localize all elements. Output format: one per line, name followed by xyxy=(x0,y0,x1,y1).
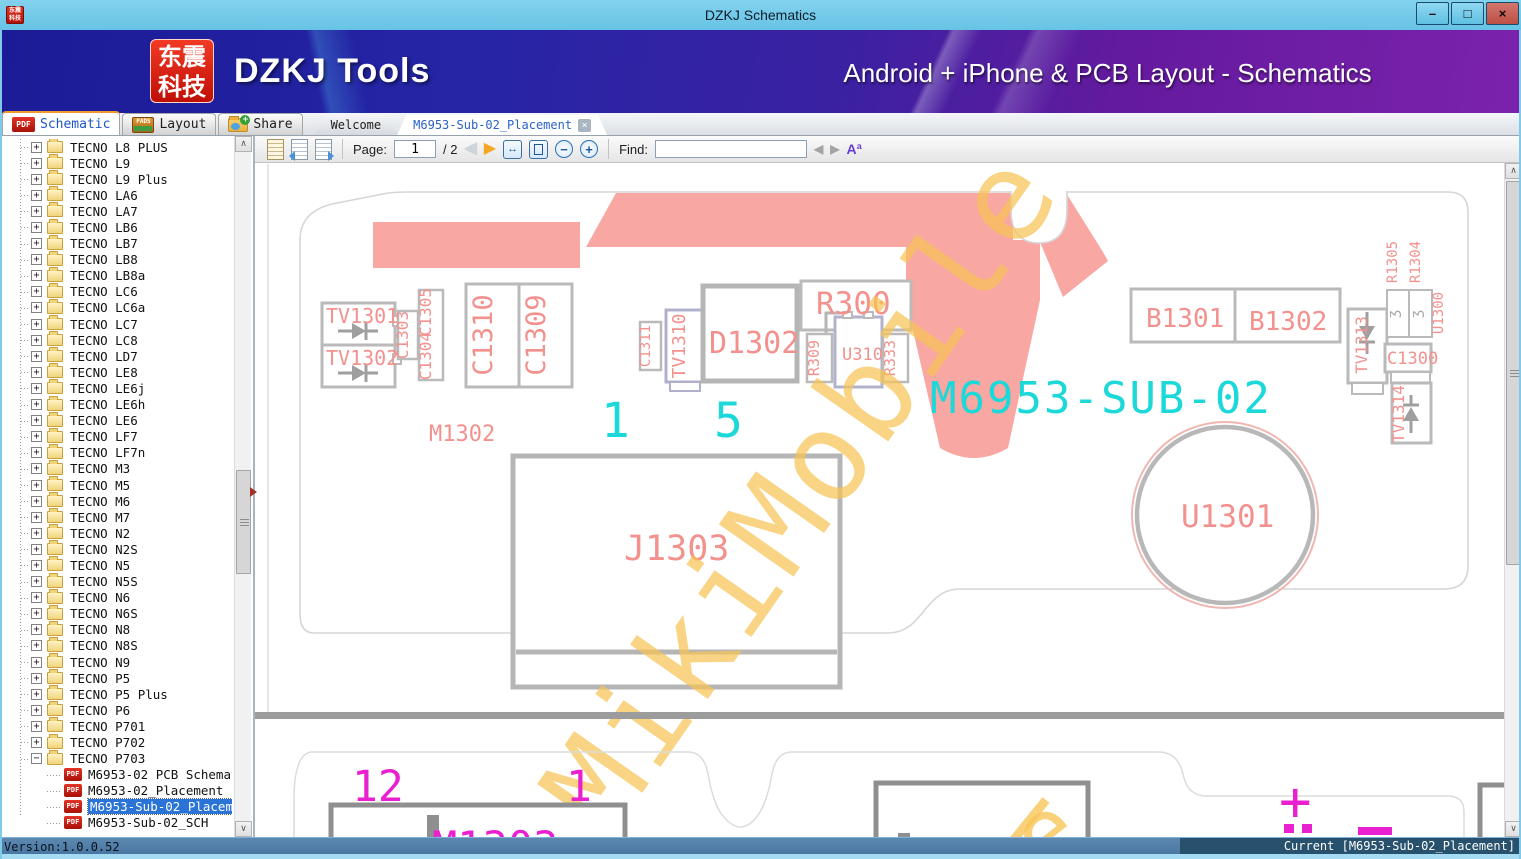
tree-folder-TECNO-LE8[interactable]: +TECNO LE8 xyxy=(0,364,232,380)
folder-icon xyxy=(47,640,63,652)
tree-folder-TECNO-LF7n[interactable]: +TECNO LF7n xyxy=(0,445,232,461)
current-document-label: Current [M6953-Sub-02_Placement] xyxy=(1180,838,1521,855)
tree-item-label: M6953-02_Placement xyxy=(88,783,223,798)
tree-item-label: TECNO L8 PLUS xyxy=(70,140,168,155)
dzkj-logo: 东震 科技 xyxy=(150,39,214,103)
folder-icon xyxy=(47,238,63,250)
expander-icon[interactable]: + xyxy=(31,480,42,491)
close-button[interactable]: × xyxy=(1486,2,1519,25)
toolbar-separator xyxy=(608,139,609,159)
pdf-icon: PDF xyxy=(64,800,82,813)
page-separator xyxy=(255,712,1521,719)
tree-item-label: TECNO LC7 xyxy=(70,317,138,332)
folder-icon xyxy=(47,286,63,298)
pcb-placement-canvas: ʒʒTV1301TV1302C1303C1304C1305C1310C1309M… xyxy=(255,163,1521,837)
tree-item-label: TECNO N5 xyxy=(70,558,130,573)
expander-icon[interactable]: + xyxy=(31,705,42,716)
label2-pin12: 12 xyxy=(352,762,404,812)
tree-item-label: TECNO LF7 xyxy=(70,429,138,444)
tab-share[interactable]: + Share xyxy=(218,113,302,135)
expander-icon[interactable]: + xyxy=(31,624,42,635)
folder-icon xyxy=(47,270,63,282)
label-TV1302: TV1302 xyxy=(326,346,398,370)
expander-icon[interactable]: + xyxy=(31,431,42,442)
scrollbar-thumb[interactable] xyxy=(236,470,251,574)
tree-item-label: TECNO L9 xyxy=(70,156,130,171)
pdf-icon: PDF xyxy=(64,768,82,781)
expander-icon[interactable]: + xyxy=(31,415,42,426)
tree-item-label: TECNO M7 xyxy=(70,510,130,525)
tree-folder-TECNO-N2[interactable]: +TECNO N2 xyxy=(0,525,232,541)
label-R1305: R1305 xyxy=(1385,241,1401,283)
page-total-label: / 2 xyxy=(443,142,457,157)
match-case-button[interactable]: Aª xyxy=(846,141,861,157)
expander-icon[interactable]: + xyxy=(31,142,42,153)
tree-item-label: TECNO P5 Plus xyxy=(70,687,168,702)
expander-icon[interactable]: + xyxy=(31,673,42,684)
previous-page-button[interactable]: ◀ xyxy=(464,141,476,157)
folder-icon xyxy=(47,737,63,749)
expander-icon[interactable]: + xyxy=(31,592,42,603)
folder-icon xyxy=(47,479,63,491)
folder-icon xyxy=(47,399,63,411)
expander-icon[interactable]: + xyxy=(31,528,42,539)
find-input[interactable] xyxy=(655,140,807,158)
tree-item-label: TECNO N2 xyxy=(70,526,130,541)
scrollbar-grip-icon xyxy=(240,522,249,523)
tree-item-label: TECNO LB8a xyxy=(70,268,145,283)
tree-item-label: TECNO N8 xyxy=(70,622,130,637)
tree-folder-TECNO-P701[interactable]: +TECNO P701 xyxy=(0,718,232,734)
next-page-button[interactable]: ▶ xyxy=(484,141,496,157)
tab-label: Schematic xyxy=(40,117,110,132)
folder-icon xyxy=(47,189,63,201)
zoom-in-button[interactable]: + xyxy=(580,140,598,158)
tree-item-label: TECNO N5S xyxy=(70,574,138,589)
folder-icon xyxy=(47,704,63,716)
tab-strip: PDF Schematic PADS Layout + Share Welcom… xyxy=(0,113,1521,136)
folder-icon xyxy=(47,592,63,604)
folder-icon xyxy=(47,222,63,234)
tree-folder-TECNO-P702[interactable]: +TECNO P702 xyxy=(0,734,232,750)
label2-plus: + xyxy=(1279,770,1312,833)
page-number-input[interactable] xyxy=(394,140,436,158)
expander-icon[interactable]: + xyxy=(31,254,42,265)
doc-tab-welcome[interactable]: Welcome xyxy=(315,115,398,135)
app-window: 东震 科技 DZKJ Schematics – □ × 东震 科技 DZKJ T… xyxy=(0,0,1521,859)
maximize-button[interactable]: □ xyxy=(1451,2,1484,25)
label-pin5: 5 xyxy=(714,393,743,449)
tree-folder-TECNO-N9[interactable]: +TECNO N9 xyxy=(0,654,232,670)
folder-icon xyxy=(47,624,63,636)
tree-item-label: TECNO LA6 xyxy=(70,188,138,203)
expander-icon[interactable]: + xyxy=(31,174,42,185)
tree-item-label: TECNO N6 xyxy=(70,590,130,605)
pdf-viewer[interactable]: ʒʒTV1301TV1302C1303C1304C1305C1310C1309M… xyxy=(255,163,1521,837)
splitter-handle[interactable] xyxy=(250,487,257,497)
expander-icon[interactable]: + xyxy=(31,657,42,668)
label-R1304: R1304 xyxy=(1408,241,1424,283)
expander-icon[interactable]: + xyxy=(31,560,42,571)
expander-icon[interactable]: + xyxy=(31,640,42,651)
label-TV1310: TV1310 xyxy=(669,313,690,378)
plus-badge-icon: + xyxy=(240,115,250,125)
label-C1309: C1309 xyxy=(521,294,552,375)
tab-schematic[interactable]: PDF Schematic xyxy=(2,111,120,135)
tree-item-label: TECNO N2S xyxy=(70,542,138,557)
expander-icon[interactable]: + xyxy=(31,302,42,313)
tree-item-label: M6953-Sub-02_SCH xyxy=(88,815,208,830)
expander-icon[interactable]: + xyxy=(31,158,42,169)
cloud-icon xyxy=(231,123,240,130)
tree-item-label: TECNO LA7 xyxy=(70,204,138,219)
tree-item-label: TECNO M3 xyxy=(70,461,130,476)
tree-item-label: TECNO LE6j xyxy=(70,381,145,396)
sidebar-scrollbar[interactable]: ∧ ∨ xyxy=(234,136,251,837)
tree-folder-TECNO-LB6[interactable]: +TECNO LB6 xyxy=(0,219,232,235)
scroll-down-button[interactable]: ∨ xyxy=(235,821,252,837)
folder-icon xyxy=(47,141,63,153)
find-label: Find: xyxy=(619,142,648,157)
expander-icon[interactable]: + xyxy=(31,367,42,378)
tree-folder-TECNO-LC6a[interactable]: +TECNO LC6a xyxy=(0,300,232,316)
tree-item-label: TECNO LB6 xyxy=(70,220,138,235)
expander-icon[interactable]: + xyxy=(31,737,42,748)
tab-layout[interactable]: PADS Layout xyxy=(122,113,216,135)
folder-icon xyxy=(47,415,63,427)
folder-icon xyxy=(47,334,63,346)
folder-icon xyxy=(47,753,63,765)
expander-icon[interactable]: + xyxy=(31,447,42,458)
tree-folder-TECNO-LB7[interactable]: +TECNO LB7 xyxy=(0,236,232,252)
folder-icon xyxy=(47,688,63,700)
pdf-icon: PDF xyxy=(64,784,82,797)
folder-icon xyxy=(47,447,63,459)
expander-icon[interactable]: + xyxy=(31,351,42,362)
tree-folder-TECNO-P5[interactable]: +TECNO P5 xyxy=(0,670,232,686)
tree-item-M6953-Sub-02_SCH[interactable]: PDFM6953-Sub-02_SCH xyxy=(0,815,232,831)
expander-icon[interactable]: + xyxy=(31,286,42,297)
label-C1310: C1310 xyxy=(468,294,499,375)
page-thumbnail-icon[interactable] xyxy=(267,139,284,160)
tree-folder-TECNO-LC7[interactable]: +TECNO LC7 xyxy=(0,316,232,332)
tree-item-label: TECNO LC6a xyxy=(70,300,145,315)
brand-title: DZKJ Tools xyxy=(234,52,430,91)
tree-folder-TECNO-P6[interactable]: +TECNO P6 xyxy=(0,702,232,718)
tree-folder-TECNO-N5S[interactable]: +TECNO N5S xyxy=(0,574,232,590)
brand-tagline: Android + iPhone & PCB Layout - Schemati… xyxy=(795,58,1420,89)
tree-folder-TECNO-N2S[interactable]: +TECNO N2S xyxy=(0,541,232,557)
tree-folder-TECNO-M7[interactable]: +TECNO M7 xyxy=(0,509,232,525)
expander-icon[interactable]: + xyxy=(31,689,42,700)
tree-item-M6953-02_Placement[interactable]: PDFM6953-02_Placement xyxy=(0,783,232,799)
title-bar: 东震 科技 DZKJ Schematics – □ × xyxy=(0,0,1521,30)
expander-icon[interactable]: + xyxy=(31,512,42,523)
tree-folder-TECNO-LE6j[interactable]: +TECNO LE6j xyxy=(0,380,232,396)
tree-folder-TECNO-M5[interactable]: +TECNO M5 xyxy=(0,477,232,493)
folder-icon xyxy=(47,495,63,507)
fit-width-button[interactable]: ↔ xyxy=(503,140,522,159)
tree-item-label: TECNO M6 xyxy=(70,494,130,509)
status-bar: Version:1.0.0.52 Current [M6953-Sub-02_P… xyxy=(0,837,1521,859)
fit-page-button[interactable] xyxy=(529,140,548,159)
tree-item-label: TECNO P702 xyxy=(70,735,145,750)
folder-icon xyxy=(47,173,63,185)
label-board-name: M6953-SUB-02 xyxy=(930,373,1272,424)
tree-folder-TECNO-LE6h[interactable]: +TECNO LE6h xyxy=(0,397,232,413)
label-U1301: U1301 xyxy=(1181,499,1274,535)
tree-folder-TECNO-LC8[interactable]: +TECNO LC8 xyxy=(0,332,232,348)
folder-icon xyxy=(47,576,63,588)
expander-icon[interactable]: − xyxy=(31,753,42,764)
pads-icon: PADS xyxy=(132,117,154,133)
folder-icon xyxy=(47,608,63,620)
folder-icon xyxy=(47,511,63,523)
folder-icon xyxy=(47,382,63,394)
flex-cable-bar xyxy=(373,222,580,268)
folder-icon xyxy=(47,543,63,555)
resistor-glyph-R1305: ʒ xyxy=(1386,310,1402,318)
resistor-glyph-R1304: ʒ xyxy=(1409,310,1425,318)
folder-icon xyxy=(47,205,63,217)
tree-item-label: TECNO LE6h xyxy=(70,397,145,412)
expander-icon[interactable]: + xyxy=(31,270,42,281)
tree-folder-TECNO-N6[interactable]: +TECNO N6 xyxy=(0,590,232,606)
tree-folder-TECNO-N8[interactable]: +TECNO N8 xyxy=(0,622,232,638)
tree-folder-TECNO-LC6[interactable]: +TECNO LC6 xyxy=(0,284,232,300)
label-C1305: C1305 xyxy=(416,288,435,336)
component-TV1310-pad xyxy=(670,382,700,391)
tree-folder-TECNO-P5-Plus[interactable]: +TECNO P5 Plus xyxy=(0,686,232,702)
tree-folder-TECNO-LB8a[interactable]: +TECNO LB8a xyxy=(0,268,232,284)
previous-view-icon[interactable] xyxy=(291,139,308,160)
tree-item-label: TECNO LC6 xyxy=(70,284,138,299)
window-frame-bottom xyxy=(0,854,1521,859)
expander-icon[interactable]: + xyxy=(31,721,42,732)
folder-icon xyxy=(47,366,63,378)
tree-folder-TECNO-N5[interactable]: +TECNO N5 xyxy=(0,557,232,573)
folder-icon xyxy=(47,431,63,443)
folder-icon xyxy=(47,720,63,732)
minimize-button[interactable]: – xyxy=(1416,2,1449,25)
tree-folder-TECNO-LF7[interactable]: +TECNO LF7 xyxy=(0,429,232,445)
folder-icon xyxy=(47,318,63,330)
folder-icon xyxy=(47,559,63,571)
tree-folder-TECNO-L9-Plus[interactable]: +TECNO L9 Plus xyxy=(0,171,232,187)
tree-item-label: TECNO LB7 xyxy=(70,236,138,251)
doc-tab-label: M6953-Sub-02_Placement xyxy=(413,118,572,132)
expander-icon[interactable]: + xyxy=(31,399,42,410)
pdf-icon: PDF xyxy=(64,816,82,829)
toolbar-separator xyxy=(342,139,343,159)
scrollbar-grip-icon xyxy=(1510,373,1519,374)
window-title: DZKJ Schematics xyxy=(0,7,1521,23)
label-TV1313: TV1313 xyxy=(1352,316,1371,374)
pdf-toolbar: Page: / 2 ◀ ▶ ↔ − + Find: ◀ ▶ Aª xyxy=(255,136,1521,163)
component-C1300-pad xyxy=(1391,372,1430,383)
folder-icon xyxy=(47,302,63,314)
expander-icon[interactable]: + xyxy=(31,238,42,249)
tree-folder-TECNO-LA6[interactable]: +TECNO LA6 xyxy=(0,187,232,203)
version-label: Version:1.0.0.52 xyxy=(4,840,120,854)
label-TV1301: TV1301 xyxy=(326,304,398,328)
tree-folder-TECNO-L8-PLUS[interactable]: +TECNO L8 PLUS xyxy=(0,139,232,155)
folder-icon xyxy=(47,527,63,539)
tree-item-label: TECNO M5 xyxy=(70,478,130,493)
label-C1304: C1304 xyxy=(416,332,435,380)
label-B1301: B1301 xyxy=(1146,304,1224,334)
expander-icon[interactable]: + xyxy=(31,222,42,233)
fit-page-icon xyxy=(534,144,543,155)
expander-icon[interactable]: + xyxy=(31,335,42,346)
expander-icon[interactable]: + xyxy=(31,319,42,330)
label-C1311: C1311 xyxy=(638,325,654,367)
label-C1300: C1300 xyxy=(1387,349,1438,369)
tree-folder-TECNO-M3[interactable]: +TECNO M3 xyxy=(0,461,232,477)
tree-folder-TECNO-LB8[interactable]: +TECNO LB8 xyxy=(0,252,232,268)
label-TV1314: TV1314 xyxy=(1389,385,1408,443)
expander-icon[interactable]: + xyxy=(31,190,42,201)
tree-folder-TECNO-L9[interactable]: +TECNO L9 xyxy=(0,155,232,171)
sidebar: +TECNO L8 PLUS+TECNO L9+TECNO L9 Plus+TE… xyxy=(0,136,255,837)
folder-icon xyxy=(47,350,63,362)
expander-icon[interactable]: + xyxy=(31,383,42,394)
tree-item-label: M6953-02 PCB Schematic xyxy=(88,767,232,782)
tree-item-M6953-02-PCB-Schematic[interactable]: PDFM6953-02 PCB Schematic xyxy=(0,767,232,783)
tree-item-label: TECNO P6 xyxy=(70,703,130,718)
expander-icon[interactable]: + xyxy=(31,206,42,217)
tree-folder-TECNO-LD7[interactable]: +TECNO LD7 xyxy=(0,348,232,364)
folder-icon xyxy=(47,656,63,668)
label-B1302: B1302 xyxy=(1249,307,1327,337)
next-view-icon[interactable] xyxy=(315,139,332,160)
tree-item-label: TECNO P5 xyxy=(70,671,130,686)
find-next-button[interactable]: ▶ xyxy=(830,142,839,156)
tree-folder-TECNO-N8S[interactable]: +TECNO N8S xyxy=(0,638,232,654)
tree-item-label: M6953-Sub-02_Placement xyxy=(88,799,232,814)
doc-tab-label: Welcome xyxy=(331,118,382,132)
window-frame-left xyxy=(0,30,2,859)
tab-label: Layout xyxy=(159,117,206,132)
tree-folder-TECNO-P703[interactable]: −TECNO P703 xyxy=(0,751,232,767)
share-folder-icon: + xyxy=(228,118,248,132)
tree-item-M6953-Sub-02_Placement[interactable]: PDFM6953-Sub-02_Placement xyxy=(0,799,232,815)
pdf-icon: PDF xyxy=(12,117,35,132)
label-pin1: 1 xyxy=(601,393,630,449)
close-tab-icon[interactable]: × xyxy=(578,119,591,132)
tree-item-label: TECNO LC8 xyxy=(70,333,138,348)
tree-item-label: TECNO LB8 xyxy=(70,252,138,267)
expander-icon[interactable]: + xyxy=(31,608,42,619)
tree-folder-TECNO-N6S[interactable]: +TECNO N6S xyxy=(0,606,232,622)
component-TV1313-pad xyxy=(1352,383,1383,394)
tree-item-label: TECNO L9 Plus xyxy=(70,172,168,187)
folder-icon xyxy=(47,254,63,266)
label2-pin1: 1 xyxy=(566,762,592,812)
label2-dot-1 xyxy=(1284,824,1294,833)
folder-icon xyxy=(47,463,63,475)
tree-folder-TECNO-M6[interactable]: +TECNO M6 xyxy=(0,493,232,509)
label2-dot-2 xyxy=(1302,824,1312,833)
doc-tab-placement[interactable]: M6953-Sub-02_Placement × xyxy=(397,115,607,135)
tree-folder-TECNO-LE6[interactable]: +TECNO LE6 xyxy=(0,413,232,429)
zoom-out-button[interactable]: − xyxy=(555,140,573,158)
label-U1300: U1300 xyxy=(1431,292,1447,334)
tree-item-label: TECNO P703 xyxy=(70,751,145,766)
tree-item-label: TECNO LF7n xyxy=(70,445,145,460)
file-tree: +TECNO L8 PLUS+TECNO L9+TECNO L9 Plus+TE… xyxy=(0,139,232,837)
brand-banner: 东震 科技 DZKJ Tools Android + iPhone & PCB … xyxy=(0,30,1521,113)
tree-item-label: TECNO LD7 xyxy=(70,349,138,364)
tree-item-label: TECNO LE8 xyxy=(70,365,138,380)
tree-folder-TECNO-LA7[interactable]: +TECNO LA7 xyxy=(0,203,232,219)
tree-item-label: TECNO LE6 xyxy=(70,413,138,428)
expander-icon[interactable]: + xyxy=(31,576,42,587)
tree-item-label: TECNO N6S xyxy=(70,606,138,621)
label-D1302: D1302 xyxy=(709,326,799,361)
label2-dash xyxy=(1358,827,1392,835)
find-previous-button[interactable]: ◀ xyxy=(814,142,823,156)
label2-partial: M1303 xyxy=(432,822,558,837)
scroll-up-button[interactable]: ∧ xyxy=(235,136,252,152)
tree-item-label: TECNO N8S xyxy=(70,638,138,653)
label-C1303: C1303 xyxy=(393,311,412,359)
tab-label: Share xyxy=(253,117,292,132)
expander-icon[interactable]: + xyxy=(31,463,42,474)
folder-icon xyxy=(47,672,63,684)
page-label: Page: xyxy=(353,142,387,157)
tree-item-label: TECNO P701 xyxy=(70,719,145,734)
tree-item-label: TECNO N9 xyxy=(70,655,130,670)
folder-icon xyxy=(47,157,63,169)
expander-icon[interactable]: + xyxy=(31,544,42,555)
expander-icon[interactable]: + xyxy=(31,496,42,507)
label-M1302: M1302 xyxy=(429,422,495,447)
